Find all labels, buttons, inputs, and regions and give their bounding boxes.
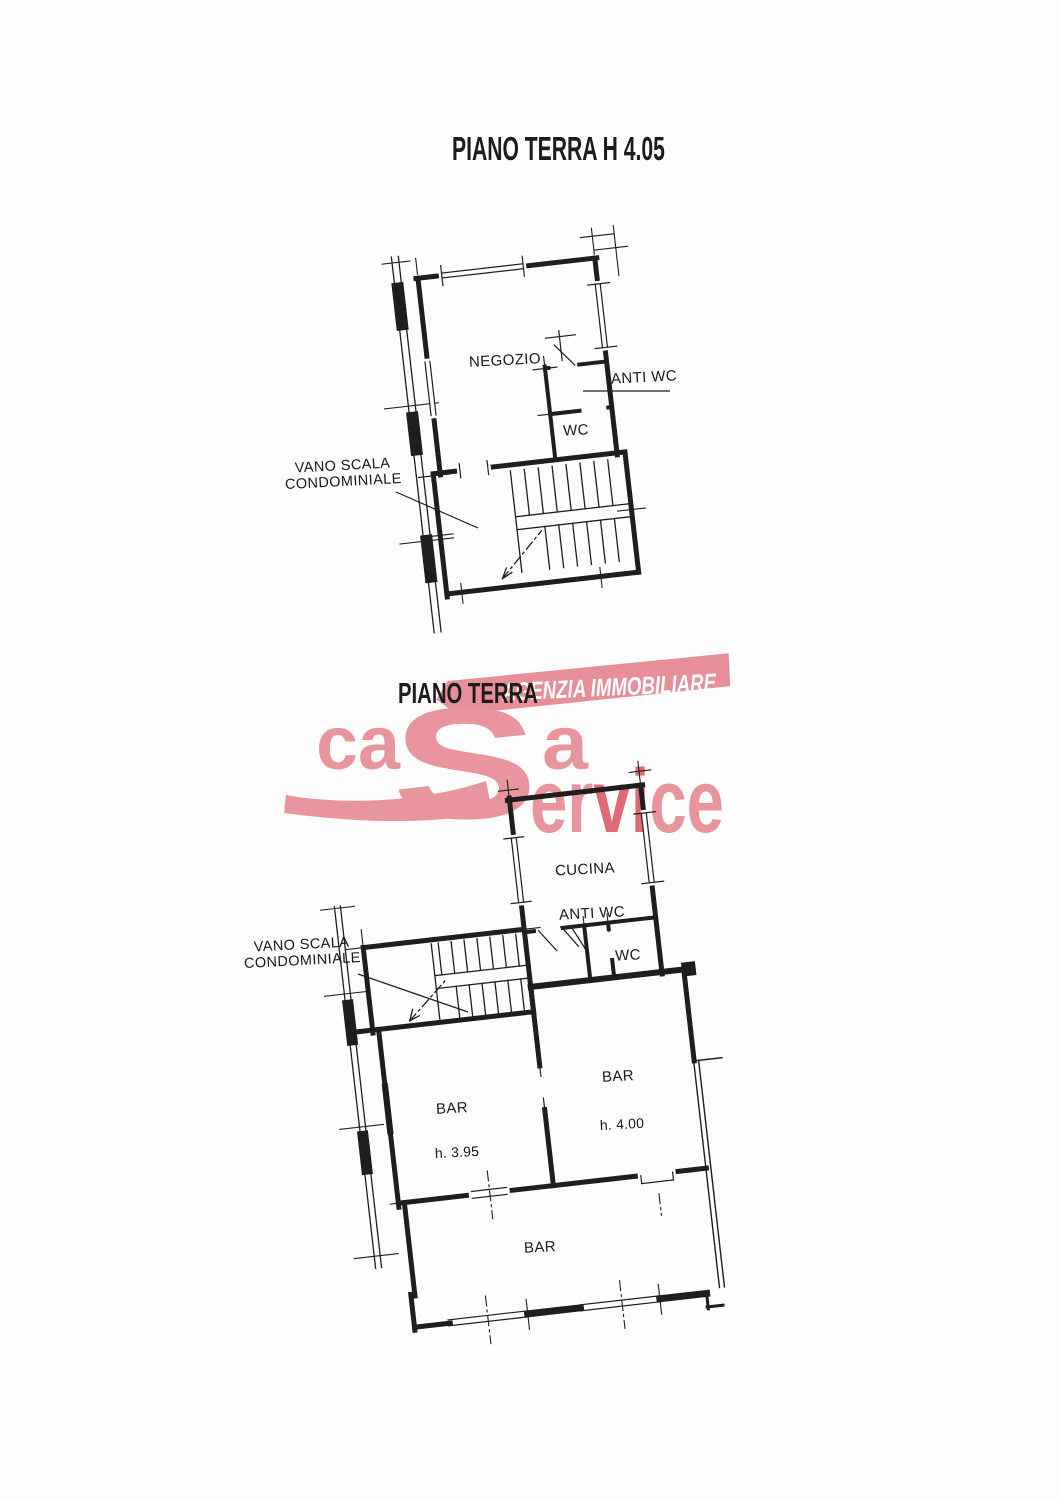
room-label-bar-left: BAR	[436, 1099, 469, 1118]
leader-lines-overlay	[0, 0, 1061, 1500]
room-label-upper-antiwc: ANTI WC	[611, 367, 678, 387]
scanned-floorplan-page: { "page": { "background": "#fdfdfd", "in…	[0, 0, 1061, 1500]
room-label-bar-left-height: h. 3.95	[435, 1143, 480, 1161]
room-label-lower-antiwc: ANTI WC	[559, 903, 626, 923]
room-label-upper-wc: WC	[563, 421, 590, 439]
room-label-bar-bottom: BAR	[524, 1238, 557, 1257]
room-label-upper-stairwell: VANO SCALA CONDOMINIALE	[284, 456, 402, 493]
room-label-bar-right-height: h. 4.00	[600, 1115, 645, 1133]
room-label-lower-wc: WC	[615, 946, 642, 964]
room-label-bar-right: BAR	[602, 1067, 635, 1086]
room-label-lower-stairwell: VANO SCALA CONDOMINIALE	[243, 935, 361, 972]
lower-antiwc-leader	[572, 928, 586, 950]
room-label-cucina: CUCINA	[555, 859, 616, 879]
lower-stairwell-leader	[358, 974, 468, 1012]
upper-stairwell-leader	[396, 492, 478, 528]
